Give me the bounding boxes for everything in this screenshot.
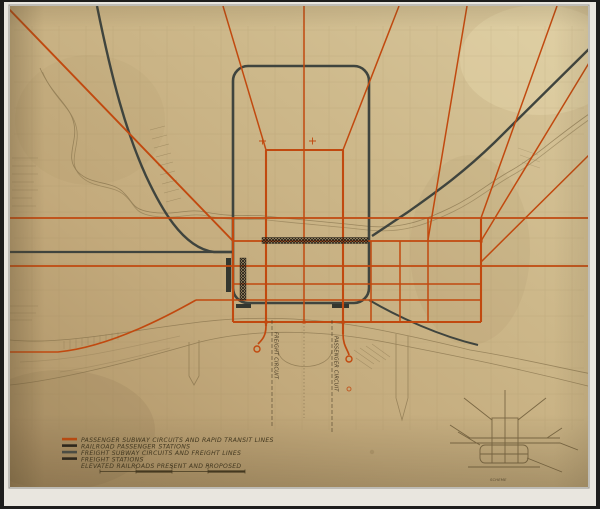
- freight-station-bar: [240, 258, 246, 300]
- railroad-passenger-station-band: [262, 238, 368, 244]
- passenger-circuit-label: PASSENGER CIRCUIT: [333, 336, 339, 392]
- station-platform-south-east: [332, 304, 349, 308]
- map-paper: FREIGHT CIRCUIT PASSENGER CIRCUIT SCHEME…: [0, 5, 600, 490]
- freight-circuit-label: FREIGHT CIRCUIT: [273, 332, 279, 380]
- station-bar-west: [226, 258, 231, 292]
- framed-transit-plan-drawing: FREIGHT CIRCUIT PASSENGER CIRCUIT SCHEME…: [0, 0, 600, 509]
- station-platform-south-west: [236, 304, 251, 308]
